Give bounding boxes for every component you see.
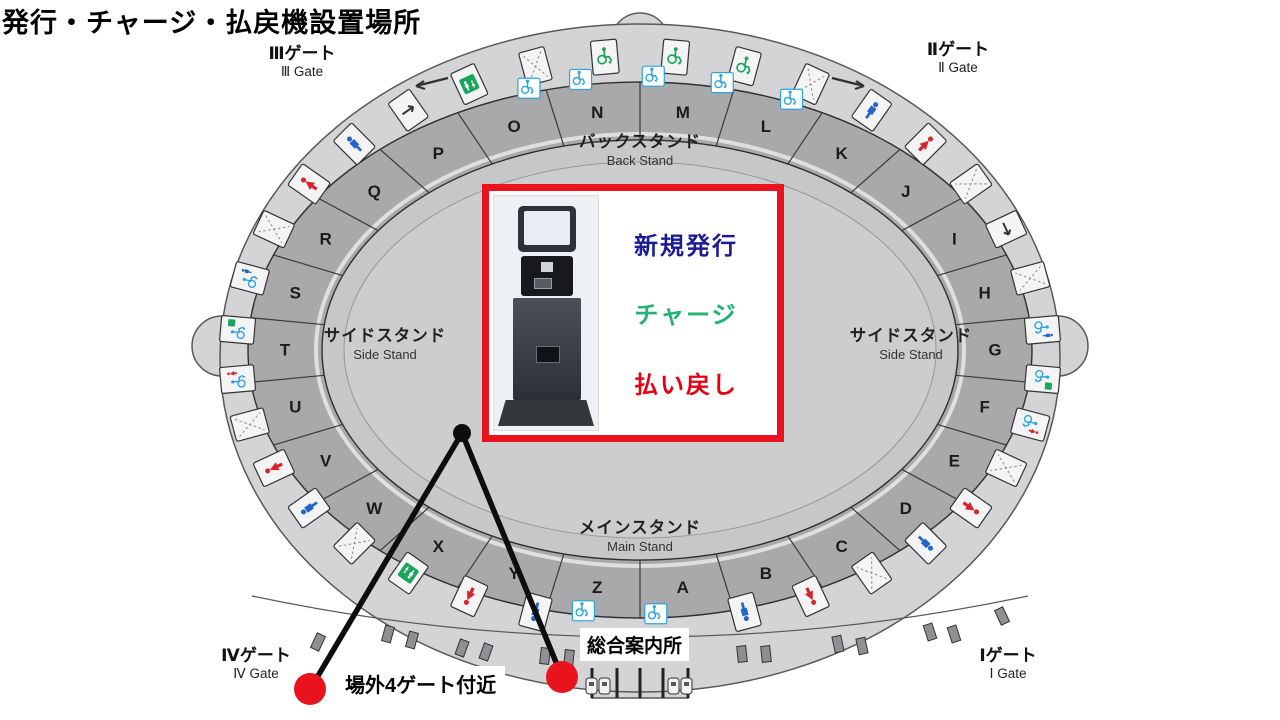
facility-icon-accessible-toilet-men xyxy=(1024,315,1060,344)
gate2-label-jp: Ⅱゲート xyxy=(888,40,1028,60)
facility-icon-accessible-toilet-family xyxy=(1024,365,1060,394)
side-stand-left-label: サイドスタンド Side Stand xyxy=(300,327,470,362)
machine-base xyxy=(498,400,594,426)
back-stand-label: バックスタンド Back Stand xyxy=(555,133,725,168)
bench-icon xyxy=(737,646,748,663)
section-label-M: M xyxy=(676,103,690,122)
section-label-A: A xyxy=(677,578,689,597)
section-label-S: S xyxy=(290,283,301,302)
gate2-label-en: Ⅱ Gate xyxy=(888,60,1028,76)
accessible-seat-wheelchair-icon xyxy=(711,73,733,93)
machine-keypad xyxy=(541,262,553,272)
side-stand-left-en: Side Stand xyxy=(300,347,470,363)
gate4-label-jp: Ⅳゲート xyxy=(186,646,326,666)
facility-icon-wheelchair-seating xyxy=(590,39,619,75)
section-label-K: K xyxy=(836,144,849,163)
section-label-B: B xyxy=(760,564,772,583)
section-label-O: O xyxy=(507,117,520,136)
section-label-P: P xyxy=(433,144,444,163)
outside-gate4-callout: 場外4ゲート付近 xyxy=(336,666,505,701)
info-line-1: チャージ xyxy=(634,295,737,330)
section-label-J: J xyxy=(901,182,910,201)
info-center-callout: 総合案内所 xyxy=(580,628,689,661)
bench-icon xyxy=(995,607,1010,625)
section-label-I: I xyxy=(952,229,957,248)
section-label-H: H xyxy=(979,283,991,302)
machine-location-dot xyxy=(453,424,471,442)
main-stand-jp: メインスタンド xyxy=(555,519,725,539)
main-stand-en: Main Stand xyxy=(555,539,725,555)
accessible-seat-wheelchair-icon xyxy=(645,604,667,624)
section-label-V: V xyxy=(320,452,332,471)
gate1-label-en: Ⅰ Gate xyxy=(938,666,1078,682)
section-label-L: L xyxy=(761,117,771,136)
section-label-F: F xyxy=(979,398,989,417)
gate2-label: Ⅱゲート Ⅱ Gate xyxy=(888,40,1028,75)
section-label-C: C xyxy=(836,537,848,556)
info-line-0: 新規発行 xyxy=(634,226,738,261)
back-stand-jp: バックスタンド xyxy=(555,133,725,153)
section-label-Z: Z xyxy=(592,578,602,597)
bench-icon xyxy=(761,646,772,663)
section-label-D: D xyxy=(900,499,912,518)
accessible-seat-wheelchair-icon xyxy=(781,89,803,109)
gate3-label-en: Ⅲ Gate xyxy=(232,64,372,80)
section-label-T: T xyxy=(280,341,291,360)
back-stand-en: Back Stand xyxy=(555,153,725,169)
facility-icon-wheelchair-seating xyxy=(661,39,690,75)
accessible-seat-wheelchair-icon xyxy=(642,66,664,86)
machine-functions: 新規発行 チャージ 払い戻し xyxy=(599,195,773,431)
stadium-map-page: ABCDEFGHIJKLMNOPQRSTUVWXYZ 発行・チャージ・払戻機設置… xyxy=(0,0,1280,720)
machine-card-slot xyxy=(534,278,552,289)
info-center-location-dot xyxy=(546,661,578,693)
side-stand-right-jp: サイドスタンド xyxy=(826,327,996,347)
gate1-label: Ⅰゲート Ⅰ Gate xyxy=(938,646,1078,681)
side-stand-right-label: サイドスタンド Side Stand xyxy=(826,327,996,362)
bench-icon xyxy=(382,625,395,643)
gate3-label-jp: Ⅲゲート xyxy=(232,44,372,64)
machine-info-box: 新規発行 チャージ 払い戻し xyxy=(482,184,784,442)
section-label-Q: Q xyxy=(368,182,381,201)
section-label-U: U xyxy=(289,398,301,417)
section-label-X: X xyxy=(433,537,445,556)
section-label-E: E xyxy=(949,452,960,471)
machine-photo xyxy=(493,195,599,431)
gate4-label-en: Ⅳ Gate xyxy=(186,666,326,682)
section-label-N: N xyxy=(591,103,603,122)
machine-display xyxy=(524,211,570,245)
bench-icon xyxy=(947,625,961,643)
facility-icon-accessible-toilet-women xyxy=(219,365,255,394)
bench-icon xyxy=(923,623,937,641)
accessible-seat-wheelchair-icon xyxy=(518,78,540,98)
page-title: 発行・チャージ・払戻機設置場所 xyxy=(0,0,435,44)
side-stand-right-en: Side Stand xyxy=(826,347,996,363)
section-label-W: W xyxy=(366,499,383,518)
accessible-seat-wheelchair-icon xyxy=(572,601,594,621)
info-line-2: 払い戻し xyxy=(634,365,738,400)
gate4-label: Ⅳゲート Ⅳ Gate xyxy=(186,646,326,681)
section-label-R: R xyxy=(320,229,332,248)
machine-cash-slot xyxy=(536,346,560,363)
main-stand-label: メインスタンド Main Stand xyxy=(555,519,725,554)
facility-icon-accessible-toilet-family xyxy=(219,315,255,344)
gate3-label: Ⅲゲート Ⅲ Gate xyxy=(232,44,372,79)
side-stand-left-jp: サイドスタンド xyxy=(300,327,470,347)
gate1-label-jp: Ⅰゲート xyxy=(938,646,1078,666)
accessible-seat-wheelchair-icon xyxy=(570,69,592,89)
